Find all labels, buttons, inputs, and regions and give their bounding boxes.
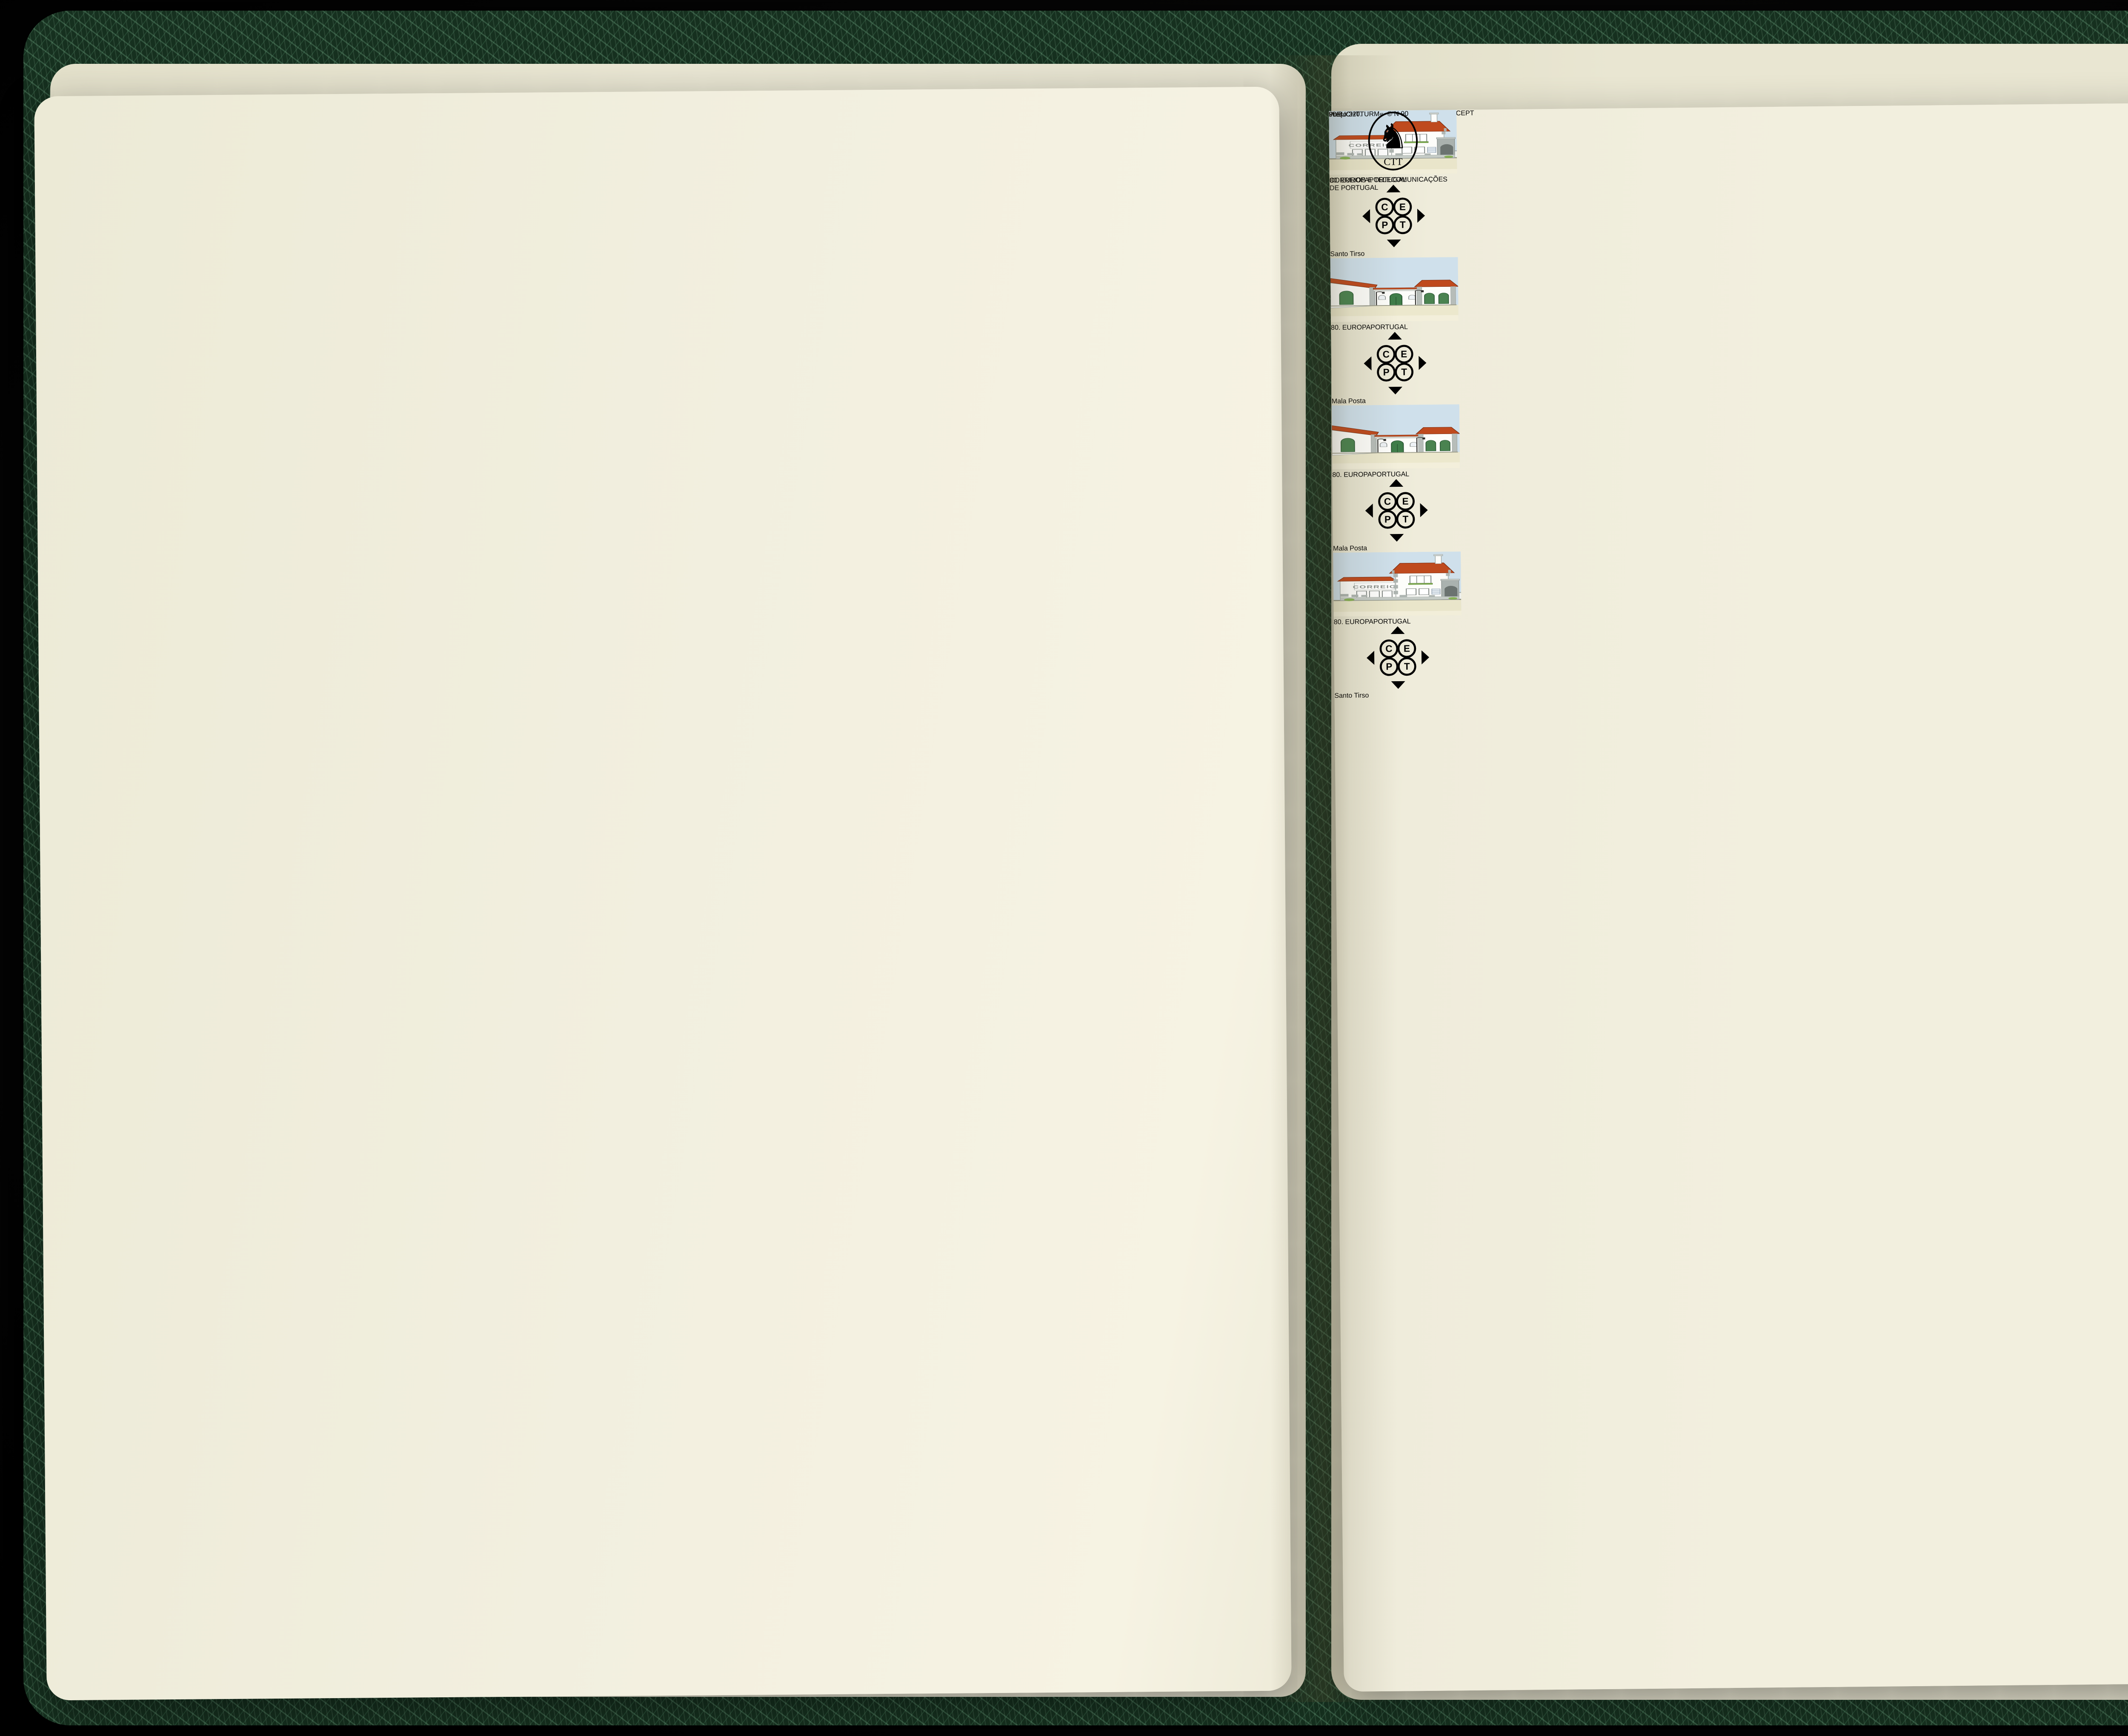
- building-illustration: [1332, 404, 1460, 469]
- cept-logo-icon: [1333, 478, 1461, 543]
- stamp-label: Mala Posta: [1332, 397, 1366, 405]
- issuer-text: CORREIOS E TELECOMUNICAÇÕES DE PORTUGAL: [1330, 176, 1447, 192]
- stamp-block: 80. EUROPAPORTUGAL Santo Tirso 80.: [1329, 110, 1462, 700]
- building-illustration: [1333, 551, 1461, 617]
- stamp-title: EUROPAPORTUGAL: [1345, 618, 1410, 625]
- cept-logo-icon: [1330, 183, 1458, 248]
- stamp-mala-posta-1: 80. EUROPAPORTUGAL Mala Posta: [1330, 257, 1459, 405]
- stamp-value: 80.: [1332, 471, 1341, 479]
- stamp-title: EUROPAPORTUGAL: [1344, 471, 1409, 478]
- stamp-label: Mala Posta: [1333, 545, 1367, 552]
- stamp-value: 80.: [1334, 619, 1343, 626]
- stamp-value: 80.: [1331, 324, 1340, 331]
- stamp-mala-posta-2: 80. EUROPAPORTUGAL Mala Posta: [1332, 404, 1461, 553]
- ctt-horse-rider-icon: [1329, 110, 1457, 175]
- stamp-title: EUROPAPORTUGAL: [1342, 323, 1408, 331]
- cept-logo-icon: [1334, 625, 1462, 690]
- album-photo: CE PT ♞ CTT: [0, 0, 2128, 1736]
- stamp-label: Santo Tirso: [1334, 692, 1369, 700]
- stamp-santo-tirso-2: 80. EUROPAPORTUGAL Santo Tirso: [1333, 551, 1462, 700]
- issuer-row: CORREIOS E TELECOMUNICAÇÕES DE PORTUGAL: [1329, 110, 1457, 192]
- building-illustration: [1330, 257, 1459, 322]
- right-album-page: EUROPA CEPT Issues CEPT-Ausgaben Emissio…: [1329, 97, 2128, 1692]
- cept-logo-icon: [1331, 331, 1459, 396]
- page-number: 90.8: [1329, 111, 1342, 119]
- left-album-page: [34, 87, 1292, 1701]
- stamp-label: Santo Tirso: [1330, 250, 1364, 258]
